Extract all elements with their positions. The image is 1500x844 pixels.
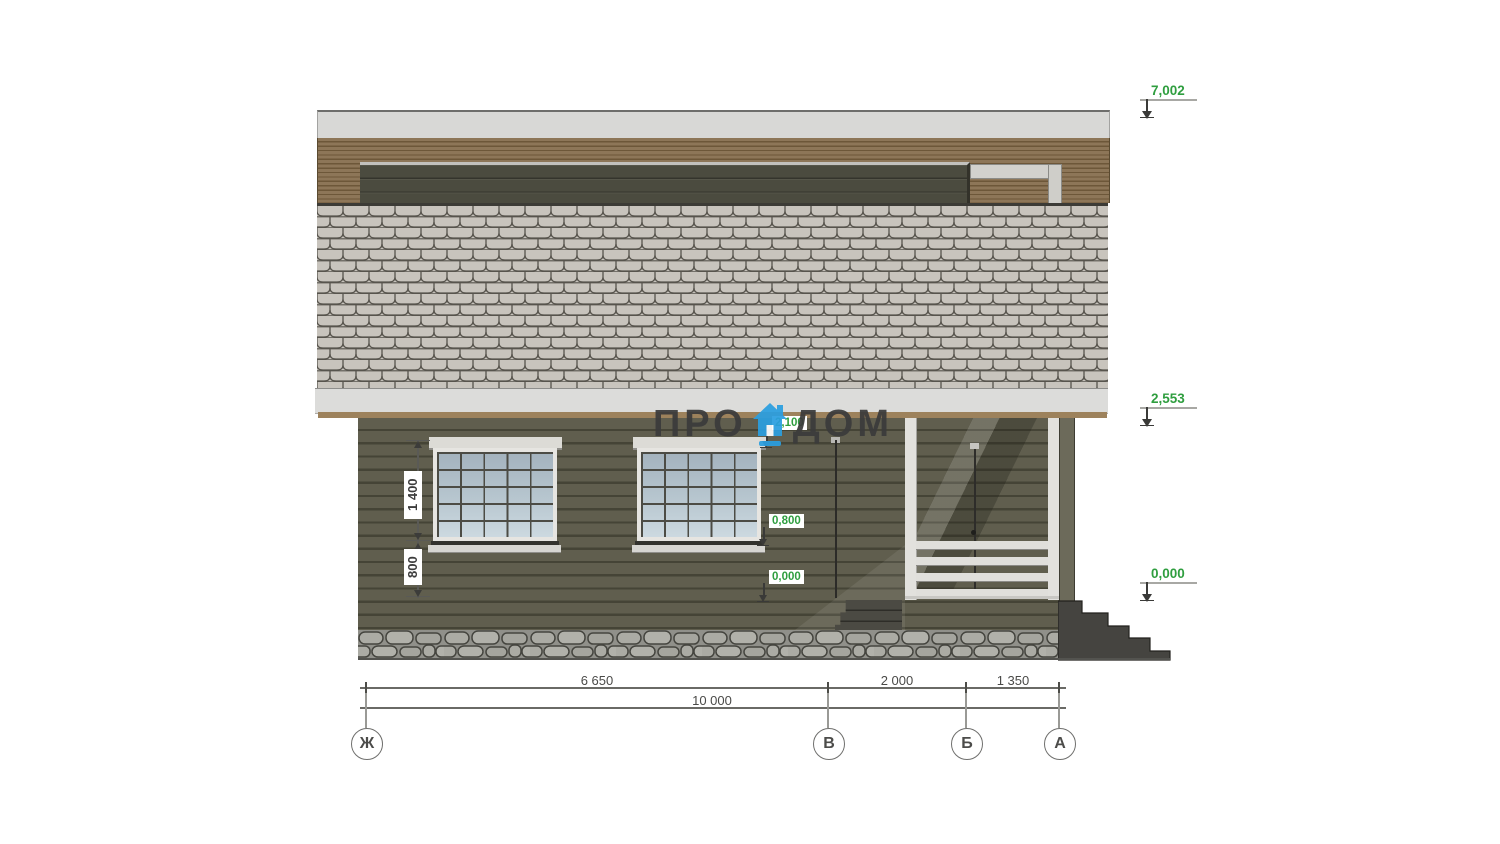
elevation-value: 0,000	[1151, 566, 1185, 581]
railing-board-2	[916, 557, 1048, 566]
elevation-marker-roof: 7,002	[1140, 83, 1200, 123]
axis-leader	[365, 693, 366, 728]
window-glazing	[637, 448, 761, 541]
window-glazing	[433, 448, 557, 541]
axis-letter: Ж	[360, 735, 374, 753]
ground-line	[358, 658, 1170, 660]
porch-recess-shadow	[916, 418, 1048, 598]
marker-line	[1140, 407, 1197, 409]
up-arrow-icon	[414, 441, 422, 448]
dim-label-window-height: 1 400	[404, 471, 422, 519]
axis-letter: А	[1054, 735, 1066, 753]
axis-leader	[827, 693, 828, 728]
elevation-value: 7,002	[1151, 83, 1185, 98]
axis-bubble-v: В	[813, 728, 845, 760]
logo-subtext-smudge	[759, 441, 781, 446]
marker-line	[1140, 99, 1197, 101]
deck-edge	[905, 596, 1060, 599]
watermark-text-left: ПРО	[653, 403, 747, 446]
axis-bubble-b: Б	[951, 728, 983, 760]
door-handle-dot	[971, 530, 976, 535]
axis-bubble-zh: Ж	[351, 728, 383, 760]
downpipe	[835, 440, 837, 598]
label-tick	[757, 601, 769, 602]
side-staircase	[1058, 598, 1173, 661]
house-icon	[753, 402, 787, 446]
dim-label: 6 650	[560, 673, 634, 688]
clerestory-beam	[970, 164, 1050, 179]
parapet-band	[317, 110, 1110, 140]
level-value: 0,800	[769, 514, 804, 528]
elevation-drawing: 7,002 2,553 0,000 2,100 0,800 0,000	[0, 0, 1500, 844]
roof-shingles	[317, 206, 1108, 388]
down-arrow-icon	[414, 590, 422, 597]
railing-board-1	[916, 541, 1048, 550]
marker-line	[1140, 582, 1197, 584]
axis-bubble-a: А	[1044, 728, 1076, 760]
watermark-logo: ПРО ДОМ	[638, 398, 908, 450]
marker-tick	[1140, 425, 1154, 426]
dim-line-row1	[360, 687, 1066, 689]
axis-leader	[1058, 693, 1059, 728]
dim-ext-mid	[406, 540, 430, 541]
label-tick	[757, 545, 769, 546]
elevation-value: 2,553	[1151, 391, 1185, 406]
railing-board-3	[916, 573, 1048, 582]
window-sill-board	[632, 545, 765, 553]
axis-leader	[965, 693, 966, 728]
down-arrow-icon	[414, 533, 422, 540]
elevation-marker-eave: 2,553	[1140, 391, 1200, 431]
watermark-text-right: ДОМ	[793, 403, 893, 446]
axis-letter: В	[823, 735, 835, 753]
marker-tick	[1140, 117, 1154, 118]
axis-tick	[965, 682, 967, 693]
stone-foundation	[358, 630, 1073, 659]
window-sill-board	[428, 545, 561, 553]
dim-label-sill-height: 800	[404, 549, 422, 585]
elevation-marker-floor: 0,000	[1140, 566, 1200, 606]
axis-tick	[365, 682, 367, 693]
axis-tick	[1058, 682, 1060, 693]
dim-label: 2 000	[860, 673, 934, 688]
dim-label: 1 350	[976, 673, 1050, 688]
axis-tick	[827, 682, 829, 693]
clerestory-strip	[360, 162, 970, 206]
axis-letter: Б	[961, 735, 973, 753]
marker-tick	[1140, 600, 1154, 601]
level-value: 0,000	[769, 570, 804, 584]
dim-label-total: 10 000	[675, 693, 749, 708]
